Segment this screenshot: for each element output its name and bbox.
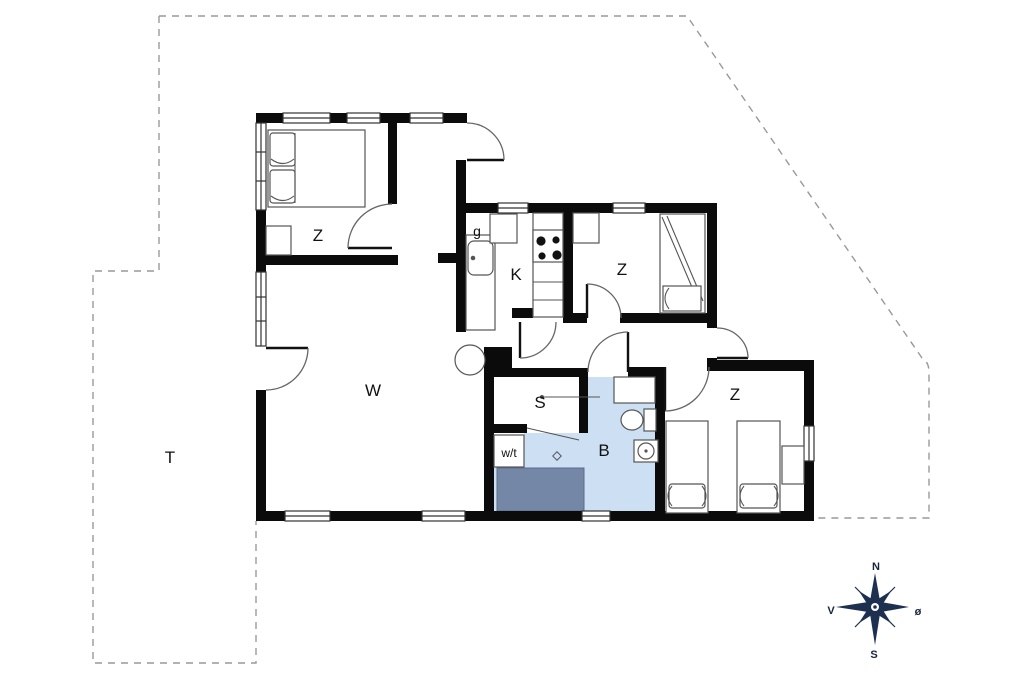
toilet-bowl — [621, 410, 643, 430]
label-terrace: T — [165, 448, 175, 467]
compass-label-west: V — [827, 605, 835, 617]
compass-rose: N S V ø — [827, 561, 921, 661]
entrance-door — [467, 123, 504, 160]
label-bath: B — [598, 441, 609, 460]
bathroom-door — [588, 332, 628, 372]
bedroom3-nightstand — [782, 446, 804, 484]
label-bedroom3: Z — [730, 385, 740, 404]
single-bed-1 — [666, 421, 708, 513]
bedroom2-closet — [573, 213, 599, 243]
single-bed-2 — [737, 421, 780, 513]
double-bed — [268, 130, 365, 207]
floorplan-page: Z K g Z W S B w/t Z T N S V ø — [0, 0, 1024, 682]
bedroom1-door — [348, 204, 392, 248]
entry-cabinet — [490, 214, 517, 243]
kitchen-counter — [533, 213, 563, 317]
bath-cabinet — [614, 377, 655, 403]
hall-door — [520, 322, 556, 358]
label-kitchen: K — [510, 265, 522, 284]
burner-1 — [536, 236, 545, 245]
bath-sink-drain — [644, 449, 647, 452]
wood-stove — [455, 345, 485, 375]
bedroom1-nightstand — [266, 226, 291, 255]
east-exit-door — [717, 328, 748, 358]
compass-label-east: ø — [915, 606, 922, 618]
label-washer: w/t — [500, 446, 517, 460]
burner-3 — [538, 252, 545, 259]
loft-bed — [660, 214, 705, 313]
faucet-dot — [471, 256, 476, 261]
bedroom2-door — [587, 284, 621, 318]
bedroom3-door — [665, 367, 709, 411]
shower-area — [497, 468, 584, 511]
label-entry: g — [473, 223, 481, 239]
floorplan-drawing: Z K g Z W S B w/t Z T N S V ø — [0, 0, 1024, 682]
label-living: W — [365, 381, 381, 400]
terrace-boundary-line — [93, 16, 256, 663]
burner-4 — [552, 250, 561, 259]
label-bedroom1: Z — [313, 226, 323, 245]
compass-label-north: N — [872, 561, 880, 573]
toilet-tank — [644, 409, 656, 431]
property-boundary-dashed — [93, 16, 929, 663]
label-bedroom2: Z — [617, 260, 627, 279]
compass-hub-dot — [873, 605, 877, 609]
burner-2 — [552, 236, 559, 243]
living-west-door — [266, 348, 308, 390]
label-sauna: S — [534, 393, 545, 412]
compass-label-south: S — [870, 649, 877, 661]
